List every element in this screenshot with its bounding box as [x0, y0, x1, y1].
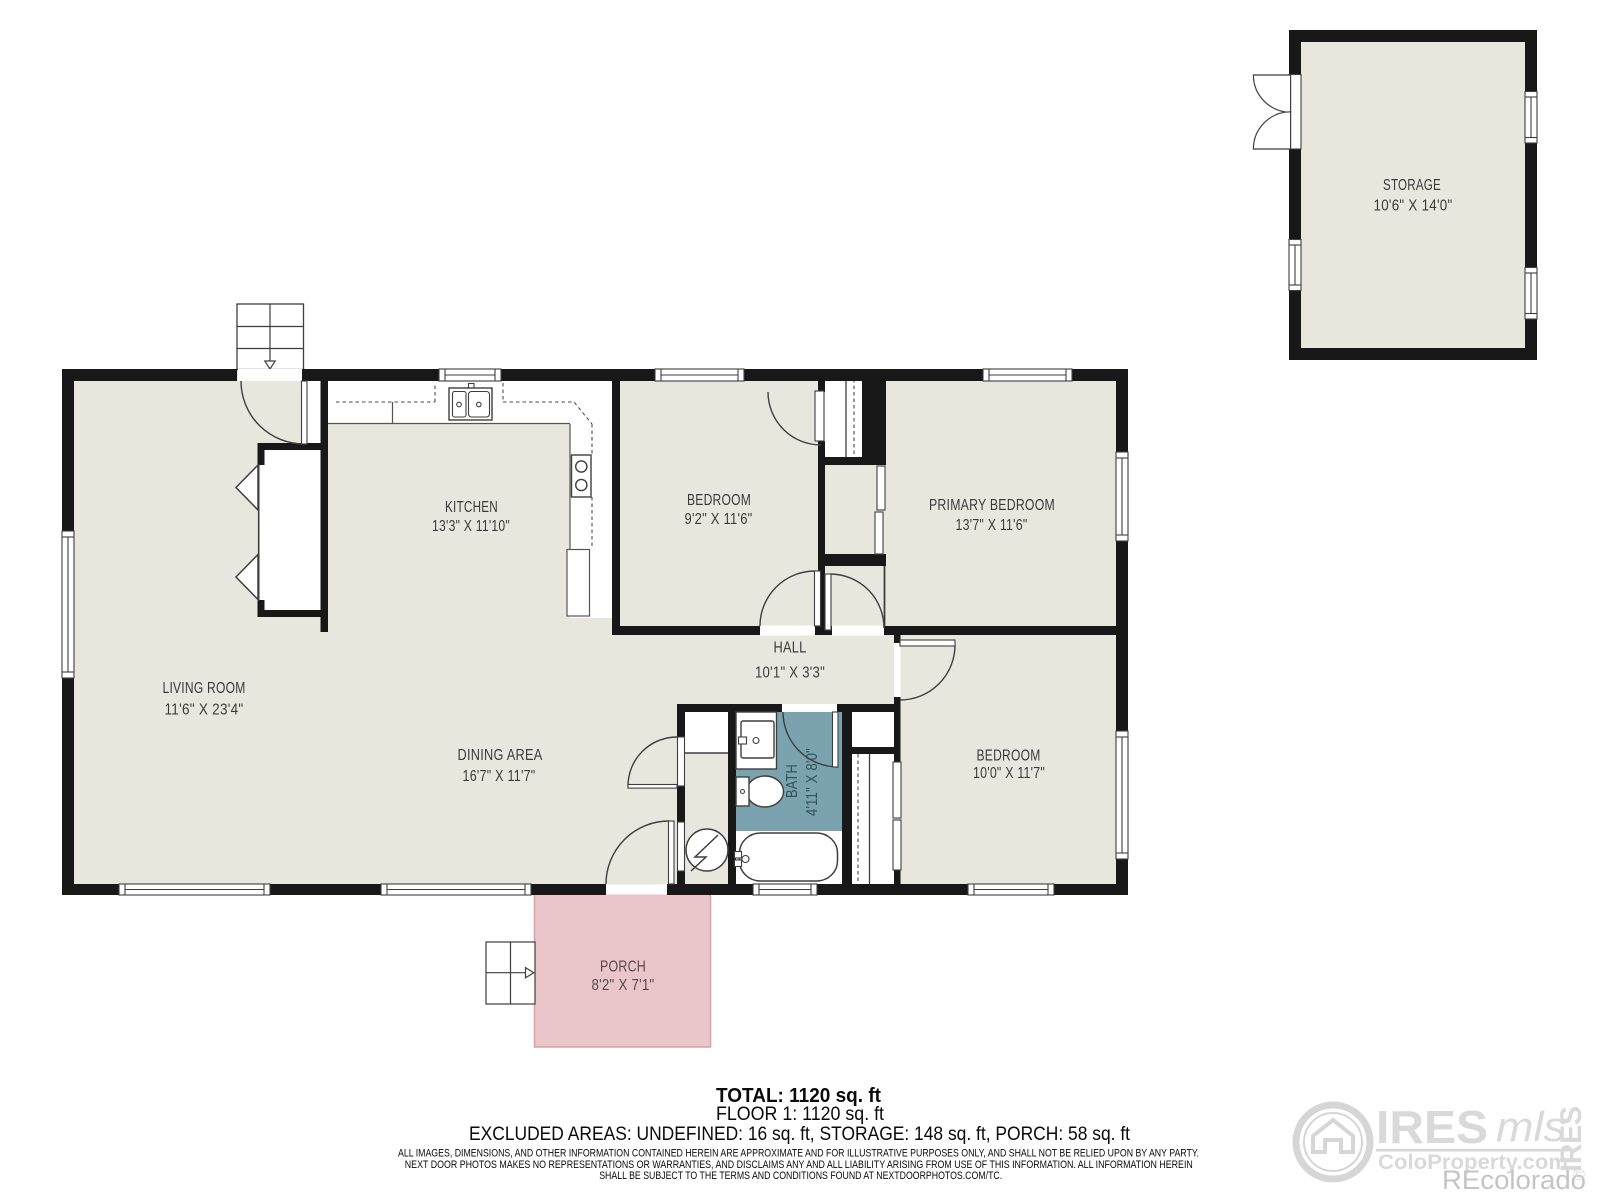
- svg-text:13'3" X 11'10": 13'3" X 11'10": [432, 518, 510, 535]
- svg-text:PORCH: PORCH: [600, 959, 646, 976]
- svg-text:IRES: IRES: [1376, 1101, 1488, 1153]
- svg-text:HALL: HALL: [774, 640, 807, 657]
- svg-text:16'7" X 11'7": 16'7" X 11'7": [463, 768, 536, 785]
- svg-text:DINING AREA: DINING AREA: [458, 747, 543, 764]
- svg-text:©: ©: [1573, 1167, 1585, 1184]
- svg-text:11'6" X 23'4": 11'6" X 23'4": [165, 702, 244, 719]
- svg-text:ALL IMAGES, DIMENSIONS, AND OT: ALL IMAGES, DIMENSIONS, AND OTHER INFORM…: [398, 1148, 1199, 1160]
- svg-text:PRIMARY BEDROOM: PRIMARY BEDROOM: [929, 497, 1055, 514]
- svg-text:BATH: BATH: [784, 764, 801, 798]
- svg-text:4'11" X 8'0": 4'11" X 8'0": [804, 748, 821, 816]
- svg-text:BEDROOM: BEDROOM: [687, 492, 751, 509]
- svg-text:LIVING ROOM: LIVING ROOM: [163, 680, 246, 697]
- svg-text:EXCLUDED AREAS: UNDEFINED: 16: EXCLUDED AREAS: UNDEFINED: 16 sq. ft, ST…: [469, 1123, 1131, 1145]
- svg-text:13'7" X 11'6": 13'7" X 11'6": [956, 517, 1028, 534]
- svg-text:10'1" X 3'3": 10'1" X 3'3": [755, 665, 825, 682]
- svg-text:8'2" X 7'1": 8'2" X 7'1": [592, 977, 655, 994]
- svg-text:10'6" X 14'0": 10'6" X 14'0": [1374, 198, 1453, 215]
- svg-text:9'2" X 11'6": 9'2" X 11'6": [685, 511, 753, 528]
- svg-text:STORAGE: STORAGE: [1383, 177, 1441, 194]
- svg-text:KITCHEN: KITCHEN: [445, 499, 498, 516]
- svg-text:SHALL BE SUBJECT TO THE TERMS: SHALL BE SUBJECT TO THE TERMS AND CONDIT…: [599, 1170, 1002, 1182]
- svg-text:10'0" X 11'7": 10'0" X 11'7": [973, 765, 1045, 782]
- svg-text:IRES: IRES: [1555, 1106, 1588, 1172]
- svg-text:FLOOR 1: 1120 sq. ft: FLOOR 1: 1120 sq. ft: [716, 1103, 885, 1125]
- svg-text:BEDROOM: BEDROOM: [977, 748, 1041, 765]
